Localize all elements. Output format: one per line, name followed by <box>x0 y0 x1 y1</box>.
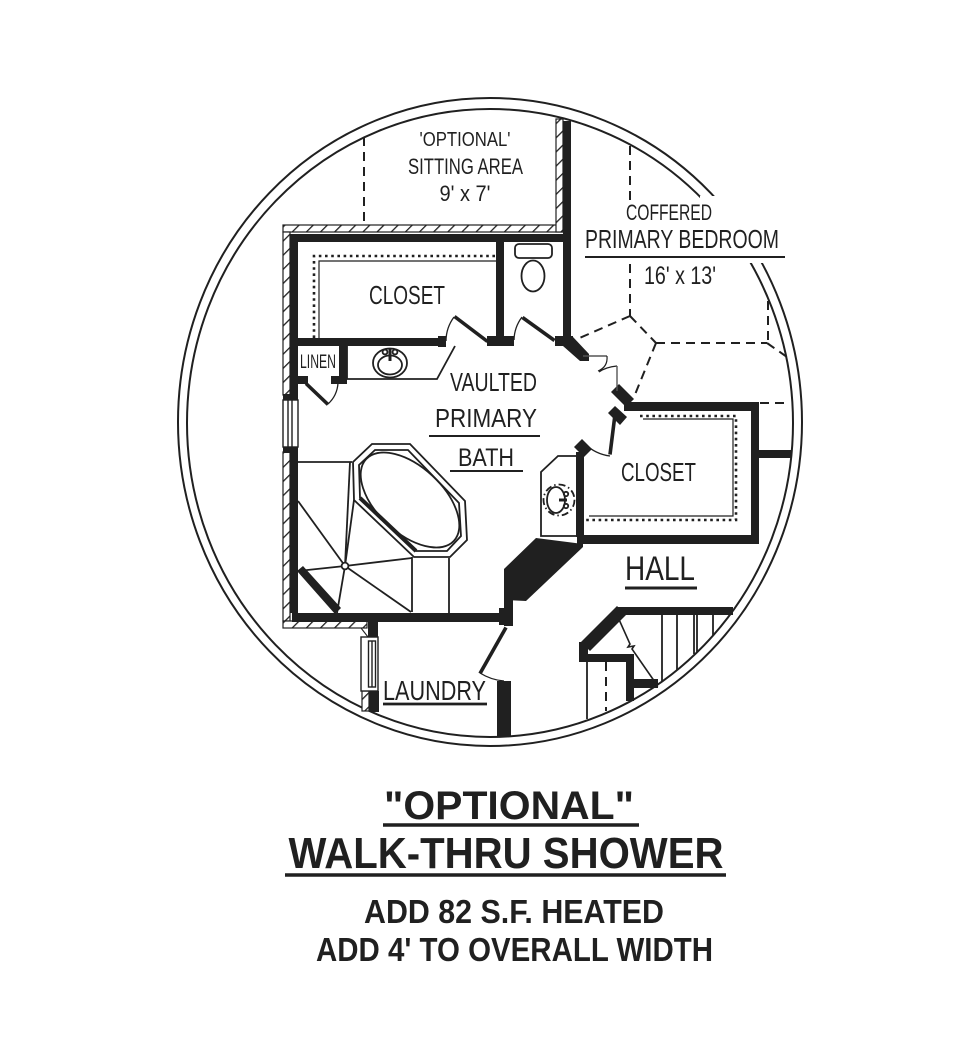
svg-text:CLOSET: CLOSET <box>621 457 696 487</box>
svg-text:COFFERED: COFFERED <box>626 200 712 225</box>
svg-text:WALK-THRU SHOWER: WALK-THRU SHOWER <box>289 829 724 878</box>
svg-text:ADD 4' TO OVERALL WIDTH: ADD 4' TO OVERALL WIDTH <box>316 931 713 968</box>
svg-text:9' x 7': 9' x 7' <box>440 181 491 206</box>
svg-text:"OPTIONAL": "OPTIONAL" <box>384 784 634 828</box>
svg-text:VAULTED: VAULTED <box>450 367 537 397</box>
svg-text:PRIMARY BEDROOM: PRIMARY BEDROOM <box>585 224 779 254</box>
svg-text:HALL: HALL <box>625 550 695 588</box>
svg-text:ADD 82 S.F. HEATED: ADD 82 S.F. HEATED <box>364 893 664 930</box>
svg-text:BATH: BATH <box>458 444 514 472</box>
svg-text:PRIMARY: PRIMARY <box>435 403 537 433</box>
svg-text:16' x 13': 16' x 13' <box>644 262 716 290</box>
svg-text:CLOSET: CLOSET <box>369 280 445 310</box>
svg-text:'OPTIONAL': 'OPTIONAL' <box>420 129 511 151</box>
svg-text:SITTING AREA: SITTING AREA <box>408 154 523 179</box>
svg-text:LAUNDRY: LAUNDRY <box>383 675 486 706</box>
svg-text:LINEN: LINEN <box>300 352 336 373</box>
